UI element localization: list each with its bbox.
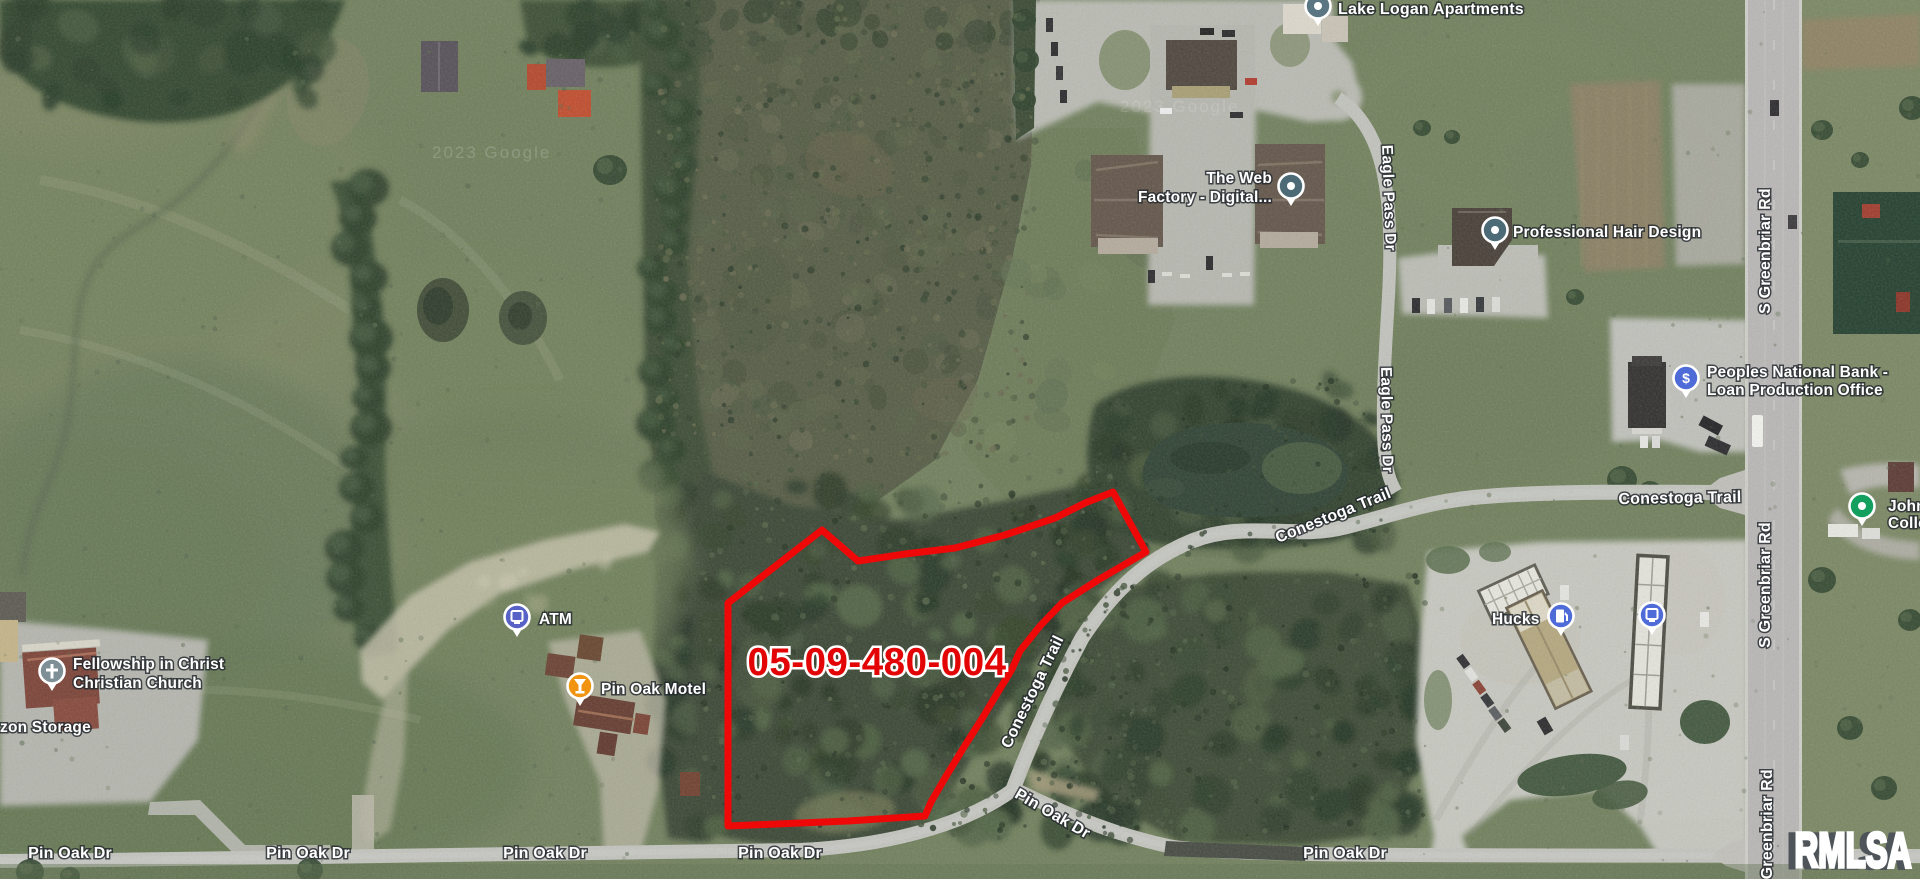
svg-text:2023 Google: 2023 Google — [1120, 97, 1239, 116]
svg-text:Professional Hair Design: Professional Hair Design — [1513, 224, 1701, 241]
svg-text:Peoples National Bank -: Peoples National Bank - — [1707, 364, 1888, 381]
svg-text:Colle: Colle — [1888, 515, 1920, 532]
svg-text:S Greenbriar Rd: S Greenbriar Rd — [1759, 769, 1776, 879]
svg-text:John: John — [1888, 498, 1920, 515]
svg-text:Eagle Pass Dr: Eagle Pass Dr — [1377, 367, 1396, 473]
svg-text:Pin Oak Dr: Pin Oak Dr — [1303, 845, 1387, 862]
svg-text:Factory - Digital...: Factory - Digital... — [1138, 189, 1272, 206]
svg-text:RMLSA: RMLSA — [1795, 824, 1912, 878]
svg-text:Fellowship in Christ: Fellowship in Christ — [73, 656, 224, 673]
svg-text:S Greenbriar Rd: S Greenbriar Rd — [1757, 188, 1774, 314]
svg-text:Pin Oak Dr: Pin Oak Dr — [266, 845, 350, 862]
svg-text:Loan Production Office: Loan Production Office — [1707, 382, 1883, 399]
svg-text:Pin Oak Dr: Pin Oak Dr — [738, 845, 822, 862]
svg-text:Pin Oak Dr: Pin Oak Dr — [28, 845, 112, 862]
svg-text:S Greenbriar Rd: S Greenbriar Rd — [1757, 522, 1774, 648]
svg-text:Christian Church: Christian Church — [73, 675, 202, 692]
svg-text:Pin Oak Motel: Pin Oak Motel — [601, 681, 706, 698]
svg-text:Conestoga Trail: Conestoga Trail — [1618, 489, 1741, 508]
svg-text:zon Storage: zon Storage — [0, 719, 91, 736]
svg-text:Hucks: Hucks — [1492, 611, 1540, 628]
svg-text:ATM: ATM — [539, 611, 572, 628]
svg-text:The Web: The Web — [1206, 170, 1272, 187]
svg-text:Pin Oak Dr: Pin Oak Dr — [503, 845, 587, 862]
svg-text:$: $ — [1682, 370, 1690, 386]
svg-text:Lake Logan Apartments: Lake Logan Apartments — [1338, 1, 1524, 18]
svg-text:2023 Google: 2023 Google — [432, 143, 551, 162]
svg-text:05-09-480-004: 05-09-480-004 — [747, 641, 1006, 684]
